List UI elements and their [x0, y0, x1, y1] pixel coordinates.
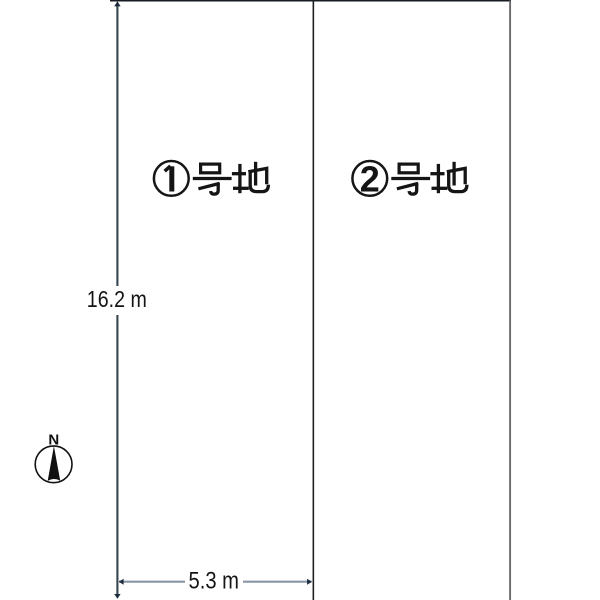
svg-text:5.3 m: 5.3 m [189, 568, 240, 595]
svg-text:16.2 m: 16.2 m [87, 286, 147, 312]
svg-text:2: 2 [360, 158, 380, 199]
